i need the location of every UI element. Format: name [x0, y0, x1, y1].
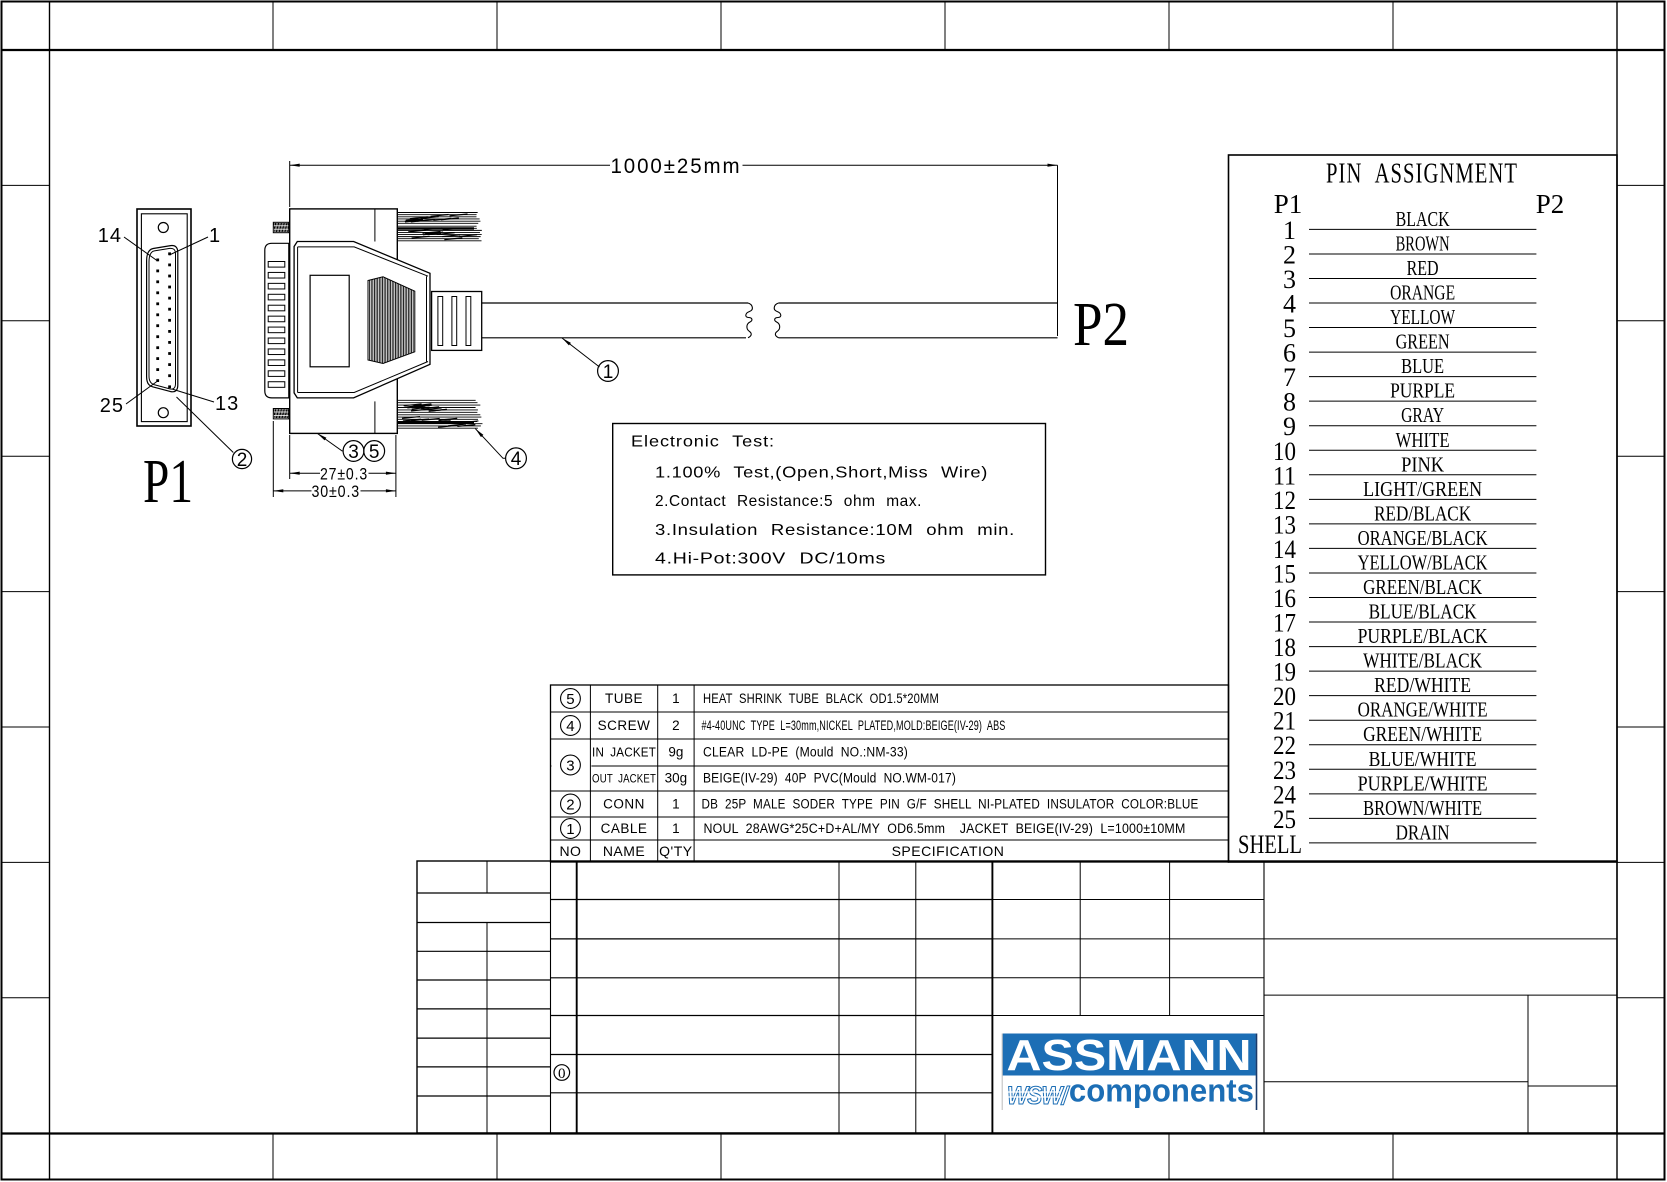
svg-text:1: 1 — [672, 821, 680, 836]
svg-text:30g: 30g — [665, 771, 688, 786]
svg-text:3.Insulation Resistance:10M oh: 3.Insulation Resistance:10M ohm min. — [655, 522, 1015, 539]
svg-text:Q'TY: Q'TY — [659, 843, 693, 859]
svg-text:P2: P2 — [1073, 291, 1129, 359]
svg-text:9g: 9g — [668, 745, 683, 760]
svg-text:3: 3 — [566, 758, 574, 775]
svg-text:YELLOW/BLACK: YELLOW/BLACK — [1358, 550, 1488, 574]
svg-text:13: 13 — [215, 393, 239, 415]
svg-text:ORANGE/BLACK: ORANGE/BLACK — [1358, 526, 1488, 550]
svg-text:1: 1 — [672, 797, 680, 812]
svg-text:1.100% Test,(Open,Short,Miss W: 1.100% Test,(Open,Short,Miss Wire) — [655, 465, 988, 482]
svg-text:GREEN: GREEN — [1396, 330, 1450, 354]
svg-text:PIN ASSIGNMENT: PIN ASSIGNMENT — [1326, 158, 1518, 190]
svg-text:4: 4 — [566, 718, 574, 735]
svg-text:TUBE: TUBE — [605, 691, 643, 706]
svg-text:2: 2 — [672, 718, 680, 733]
svg-text:NAME: NAME — [603, 843, 645, 859]
svg-text:P1: P1 — [143, 448, 193, 516]
svg-text:CONN: CONN — [603, 797, 645, 812]
svg-text:OUT JACKET: OUT JACKET — [592, 774, 656, 786]
svg-text:PURPLE/BLACK: PURPLE/BLACK — [1358, 624, 1488, 648]
svg-text:RED: RED — [1407, 256, 1439, 280]
svg-text:30±0.3: 30±0.3 — [312, 482, 361, 501]
svg-text:P1: P1 — [1274, 189, 1303, 219]
svg-text:CLEAR LD-PE (Mould NO.:NM-33): CLEAR LD-PE (Mould NO.:NM-33) — [703, 745, 908, 760]
svg-text:Electronic Test:: Electronic Test: — [631, 434, 775, 451]
svg-text:4.Hi-Pot:300V DC/10ms: 4.Hi-Pot:300V DC/10ms — [655, 551, 886, 568]
svg-text:NOUL 28AWG*25C+D+AL/MY OD6.5mm: NOUL 28AWG*25C+D+AL/MY OD6.5mm JACKET BE… — [704, 821, 1186, 836]
svg-text:WSW/: WSW/ — [1007, 1082, 1071, 1110]
svg-text:3: 3 — [348, 442, 359, 463]
svg-text:BLUE/WHITE: BLUE/WHITE — [1369, 747, 1477, 771]
svg-text:1000±25mm: 1000±25mm — [611, 154, 742, 178]
svg-text:2: 2 — [566, 797, 574, 814]
svg-text:NO: NO — [559, 843, 581, 859]
svg-text:1: 1 — [566, 821, 574, 838]
svg-text:ORANGE: ORANGE — [1390, 281, 1455, 305]
svg-text:5: 5 — [369, 442, 380, 463]
svg-text:WHITE: WHITE — [1396, 428, 1450, 452]
svg-text:DB 25P MALE SODER TYPE PIN G/F: DB 25P MALE SODER TYPE PIN G/F SHELL NI-… — [702, 797, 1199, 812]
svg-text:BEIGE(IV-29) 40P PVC(Mould NO.: BEIGE(IV-29) 40P PVC(Mould NO.WM-017) — [703, 771, 956, 786]
svg-text:2: 2 — [237, 450, 248, 471]
svg-text:GREEN/WHITE: GREEN/WHITE — [1363, 722, 1482, 746]
svg-text:WHITE/BLACK: WHITE/BLACK — [1363, 649, 1482, 673]
svg-text:1: 1 — [603, 362, 614, 383]
svg-text:BLUE: BLUE — [1401, 354, 1444, 378]
svg-text:BLACK: BLACK — [1396, 207, 1450, 231]
svg-text:P2: P2 — [1536, 189, 1565, 219]
svg-text:0: 0 — [558, 1066, 566, 1082]
svg-text:YELLOW: YELLOW — [1390, 305, 1455, 329]
svg-text:components: components — [1069, 1073, 1254, 1109]
svg-text:BLUE/BLACK: BLUE/BLACK — [1369, 600, 1477, 624]
svg-text:#4-40UNC TYPE L=30mm,NICKEL PL: #4-40UNC TYPE L=30mm,NICKEL PLATED,MOLD:… — [702, 718, 1006, 733]
svg-text:GRAY: GRAY — [1401, 403, 1444, 427]
svg-text:LIGHT/GREEN: LIGHT/GREEN — [1363, 477, 1482, 501]
svg-text:PINK: PINK — [1401, 452, 1444, 476]
svg-text:27±0.3: 27±0.3 — [320, 465, 368, 484]
svg-text:HEAT SHRINK TUBE BLACK OD1.5*2: HEAT SHRINK TUBE BLACK OD1.5*20MM — [703, 691, 939, 706]
svg-text:25: 25 — [100, 395, 124, 417]
svg-text:SHELL: SHELL — [1238, 830, 1302, 859]
svg-text:RED/BLACK: RED/BLACK — [1374, 501, 1471, 525]
svg-text:2.Contact Resistance:5 ohm max: 2.Contact Resistance:5 ohm max. — [655, 493, 922, 510]
svg-text:SCREW: SCREW — [598, 718, 651, 733]
svg-text:RED/WHITE: RED/WHITE — [1374, 673, 1471, 697]
svg-text:BROWN/WHITE: BROWN/WHITE — [1363, 796, 1482, 820]
svg-text:1: 1 — [672, 691, 680, 706]
svg-text:DRAIN: DRAIN — [1396, 820, 1450, 844]
svg-text:PURPLE: PURPLE — [1390, 379, 1455, 403]
svg-text:4: 4 — [511, 449, 522, 470]
svg-text:1: 1 — [209, 225, 221, 247]
svg-text:GREEN/BLACK: GREEN/BLACK — [1363, 575, 1482, 599]
svg-text:IN JACKET: IN JACKET — [592, 746, 656, 760]
svg-text:BROWN: BROWN — [1396, 231, 1450, 255]
svg-text:PURPLE/WHITE: PURPLE/WHITE — [1358, 771, 1488, 795]
svg-text:SPECIFICATION: SPECIFICATION — [892, 843, 1005, 859]
svg-text:CABLE: CABLE — [601, 821, 648, 836]
svg-text:ORANGE/WHITE: ORANGE/WHITE — [1358, 698, 1488, 722]
svg-text:5: 5 — [566, 691, 574, 708]
svg-text:14: 14 — [98, 225, 122, 247]
